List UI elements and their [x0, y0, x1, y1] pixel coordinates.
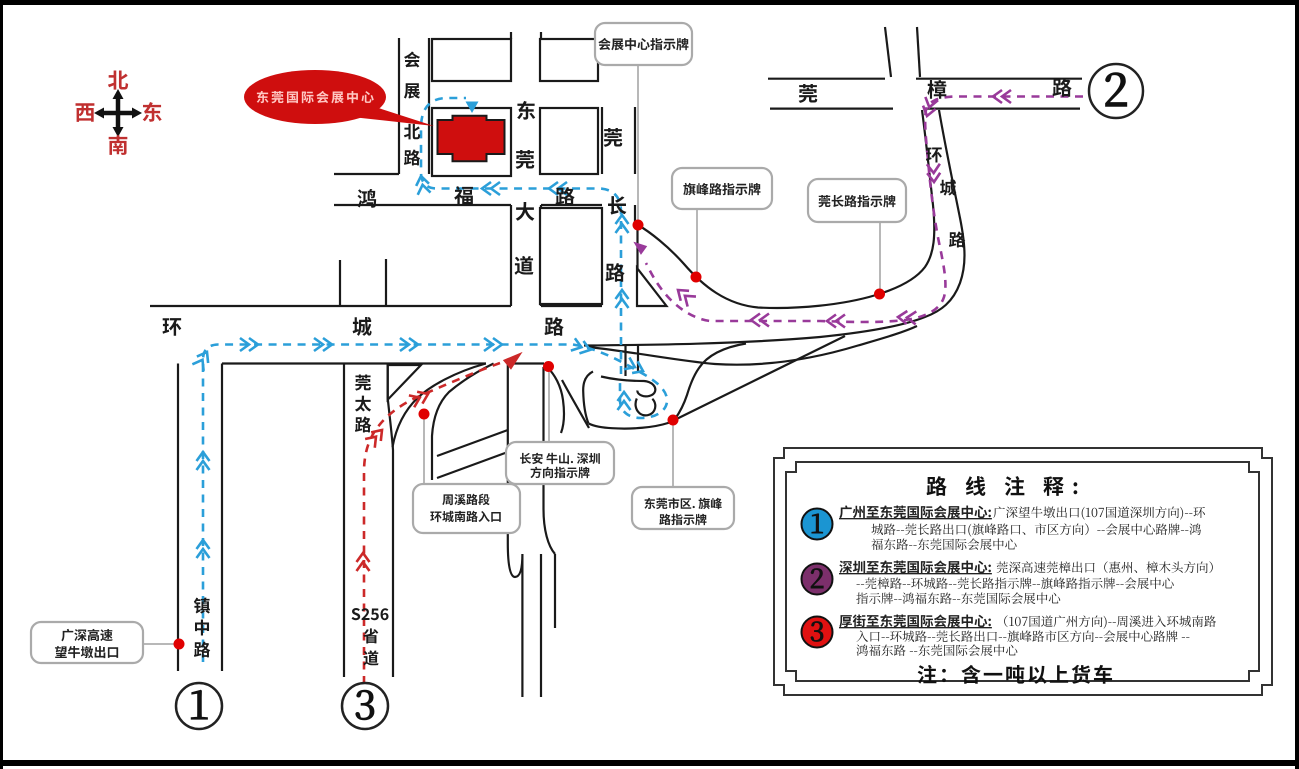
svg-text:城: 城 — [352, 311, 372, 340]
svg-text:指示牌--鸿福东路--东莞国际会展中心: 指示牌--鸿福东路--东莞国际会展中心 — [856, 589, 1061, 607]
svg-text:福: 福 — [454, 180, 474, 209]
svg-text:莞长路指示牌: 莞长路指示牌 — [818, 191, 896, 210]
svg-text:环城南路入口: 环城南路入口 — [430, 508, 502, 525]
svg-text:鸿福东路 --东莞国际会展中心: 鸿福东路 --东莞国际会展中心 — [856, 641, 1018, 659]
svg-text:2: 2 — [810, 557, 825, 596]
svg-text:路: 路 — [355, 411, 372, 436]
svg-text:路: 路 — [404, 144, 421, 169]
svg-text:城: 城 — [940, 174, 957, 199]
svg-text:注：含一吨以上货车: 注：含一吨以上货车 — [917, 659, 1115, 688]
svg-text:莞: 莞 — [515, 144, 535, 173]
svg-text:环: 环 — [926, 141, 943, 166]
svg-text:路指示牌: 路指示牌 — [659, 511, 707, 528]
svg-text:东莞国际会展中心: 东莞国际会展中心 — [256, 87, 374, 106]
svg-text:1: 1 — [810, 502, 825, 541]
svg-text:路: 路 — [949, 226, 966, 251]
svg-text:道: 道 — [514, 250, 534, 279]
svg-text:路: 路 — [555, 181, 575, 210]
svg-text:莞: 莞 — [603, 122, 623, 151]
svg-text:展: 展 — [404, 77, 421, 102]
svg-text:2: 2 — [1103, 54, 1128, 120]
svg-text:路: 路 — [1052, 72, 1072, 101]
svg-text:3: 3 — [810, 610, 825, 649]
svg-text:会展中心指示牌: 会展中心指示牌 — [598, 34, 689, 53]
svg-text:长: 长 — [607, 190, 627, 219]
svg-text:东: 东 — [516, 95, 536, 124]
svg-text:省: 省 — [363, 623, 379, 647]
svg-text:S256: S256 — [351, 601, 389, 625]
svg-text:广深望牛墩出口(107国道深圳方向)--环: 广深望牛墩出口(107国道深圳方向)--环 — [993, 503, 1206, 521]
svg-text:会: 会 — [404, 46, 421, 71]
svg-text:周溪路段: 周溪路段 — [442, 491, 490, 508]
svg-text:路线注释: 路线注释 — [926, 471, 1082, 501]
svg-text:北: 北 — [404, 118, 421, 143]
svg-text:望牛墩出口: 望牛墩出口 — [54, 642, 119, 661]
svg-text:北: 北 — [108, 65, 129, 95]
svg-text:福东路--东莞国际会展中心: 福东路--东莞国际会展中心 — [871, 535, 1018, 553]
svg-text:广州至东莞国际会展中心:: 广州至东莞国际会展中心: — [839, 501, 992, 521]
svg-text:旗峰路指示牌: 旗峰路指示牌 — [683, 179, 761, 198]
svg-text:樟: 樟 — [927, 74, 947, 103]
svg-text:道: 道 — [363, 645, 379, 669]
svg-text:南: 南 — [108, 130, 129, 160]
svg-text:莞: 莞 — [798, 78, 818, 107]
svg-text:东莞市区. 旗峰: 东莞市区. 旗峰 — [644, 495, 723, 512]
svg-text:鸿: 鸿 — [357, 183, 377, 212]
svg-text:深圳至东莞国际会展中心:: 深圳至东莞国际会展中心: — [839, 556, 992, 576]
svg-text:西: 西 — [75, 97, 96, 127]
svg-text:3: 3 — [354, 674, 376, 731]
svg-text::: : — [1072, 471, 1079, 501]
svg-text:大: 大 — [515, 196, 535, 225]
svg-text:环: 环 — [162, 311, 182, 340]
svg-text:路: 路 — [194, 636, 211, 661]
svg-text:东: 东 — [142, 97, 163, 127]
svg-text:路: 路 — [544, 311, 564, 340]
svg-text:1: 1 — [188, 674, 210, 731]
svg-text:方向指示牌: 方向指示牌 — [530, 464, 590, 481]
svg-text:路: 路 — [605, 257, 625, 286]
